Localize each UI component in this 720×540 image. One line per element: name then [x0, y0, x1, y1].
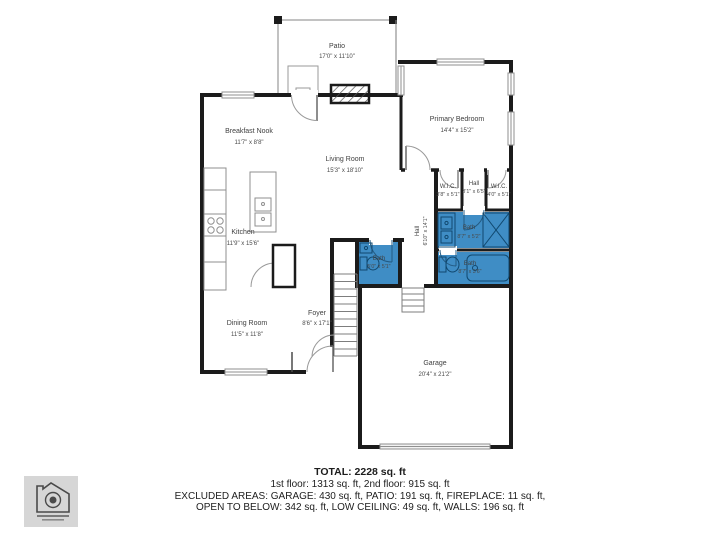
window-bedroom-right-1 [508, 73, 514, 95]
fireplace [331, 85, 369, 103]
excluded-areas-1: EXCLUDED AREAS: GARAGE: 430 sq. ft, PATI… [0, 491, 720, 503]
room-label-patio: Patio 17'0" x 11'10" [319, 43, 355, 60]
room-label-hall-upper: Hall 3'1" x 6'5" [462, 181, 485, 195]
excluded-areas-2: OPEN TO BELOW: 342 sq. ft, LOW CEILING: … [0, 502, 720, 514]
pantry-door [251, 263, 275, 287]
svg-text:3'1" x 6'5": 3'1" x 6'5" [462, 189, 485, 195]
svg-text:3'8" x 5'1": 3'8" x 5'1" [436, 192, 459, 198]
svg-text:Breakfast Nook: Breakfast Nook [225, 128, 273, 135]
svg-text:Garage: Garage [423, 360, 446, 367]
svg-text:Bath: Bath [464, 261, 476, 267]
floor-plan-page: Patio 17'0" x 11'10" Breakfast Nook 11'7… [0, 0, 720, 540]
room-label-foyer: Foyer 8'6" x 17'1" [302, 310, 332, 327]
svg-text:Bath: Bath [463, 225, 475, 231]
svg-text:Hall: Hall [415, 226, 421, 236]
area-summary: TOTAL: 2228 sq. ft 1st floor: 1313 sq. f… [0, 467, 720, 514]
watermark-logo [24, 476, 78, 527]
garage-vehicle-door [380, 444, 490, 449]
svg-text:Hall: Hall [469, 181, 479, 187]
front-door [306, 346, 334, 377]
svg-text:5'0" x 5'1": 5'0" x 5'1" [367, 264, 390, 270]
svg-text:8'6" x 17'1": 8'6" x 17'1" [302, 321, 332, 327]
room-label-breakfast-nook: Breakfast Nook 11'7" x 8'8" [225, 128, 273, 146]
window-dining-bottom [225, 369, 267, 375]
svg-text:Kitchen: Kitchen [231, 229, 254, 236]
svg-text:11'9" x 15'6": 11'9" x 15'6" [227, 241, 259, 247]
total-area: TOTAL: 2228 sq. ft [0, 467, 720, 479]
garage-steps [402, 288, 424, 312]
svg-text:11'7" x 8'8": 11'7" x 8'8" [234, 140, 263, 146]
svg-text:Bath: Bath [373, 256, 385, 262]
patio-post-left [274, 16, 282, 24]
room-label-living-room: Living Room 15'3" x 18'10" [326, 156, 365, 174]
svg-text:4'0" x 5'1": 4'0" x 5'1" [487, 192, 510, 198]
lower-bath-floor [438, 252, 509, 284]
svg-text:Primary Bedroom: Primary Bedroom [430, 116, 485, 123]
room-label-garage: Garage 20'4" x 21'2" [419, 360, 452, 378]
svg-text:15'3" x 18'10": 15'3" x 18'10" [327, 168, 363, 174]
hall-upper-opening [464, 166, 484, 175]
svg-text:Foyer: Foyer [308, 310, 327, 317]
svg-text:Living Room: Living Room [326, 156, 365, 163]
floor-areas: 1st floor: 1313 sq. ft, 2nd floor: 915 s… [0, 479, 720, 491]
room-label-kitchen: Kitchen 11'9" x 15'6" [227, 229, 259, 247]
svg-text:8'7" x 5'2": 8'7" x 5'2" [457, 234, 480, 240]
kitchen-counter [204, 168, 226, 290]
pantry-closet [273, 245, 295, 287]
svg-text:8'7" x 3'6": 8'7" x 3'6" [458, 269, 481, 275]
svg-text:6'10" x 14'1": 6'10" x 14'1" [423, 216, 429, 245]
window-bedroom-left [398, 66, 404, 95]
svg-text:17'0" x 11'10": 17'0" x 11'10" [319, 54, 355, 60]
house-camera-logo-icon [29, 480, 73, 524]
patio-door [291, 90, 318, 121]
svg-text:Patio: Patio [329, 43, 345, 50]
room-label-wic-right: W.I.C. 4'0" x 5'1" [487, 184, 510, 198]
room-label-dining-room: Dining Room 11'5" x 11'8" [227, 320, 268, 338]
floor-plan-drawing: Patio 17'0" x 11'10" Breakfast Nook 11'7… [0, 0, 720, 540]
svg-text:Dining Room: Dining Room [227, 320, 268, 327]
room-label-wic-left: W.I.C. 3'8" x 5'1" [436, 184, 459, 198]
room-label-primary-bedroom: Primary Bedroom 14'4" x 15'2" [430, 116, 485, 134]
kitchen-island [250, 172, 276, 232]
svg-text:W.I.C.: W.I.C. [440, 184, 457, 190]
svg-text:14'4" x 15'2": 14'4" x 15'2" [441, 128, 474, 134]
svg-text:W.I.C.: W.I.C. [491, 184, 508, 190]
svg-text:20'4" x 21'2": 20'4" x 21'2" [419, 372, 452, 378]
room-label-hall-main: Hall 6'10" x 14'1" [415, 216, 429, 245]
window-bedroom-top [437, 59, 484, 65]
window-bedroom-right-2 [508, 112, 514, 145]
bedroom-door [405, 146, 431, 175]
window-breakfast-top [222, 92, 254, 98]
svg-text:11'5" x 11'8": 11'5" x 11'8" [231, 332, 263, 338]
